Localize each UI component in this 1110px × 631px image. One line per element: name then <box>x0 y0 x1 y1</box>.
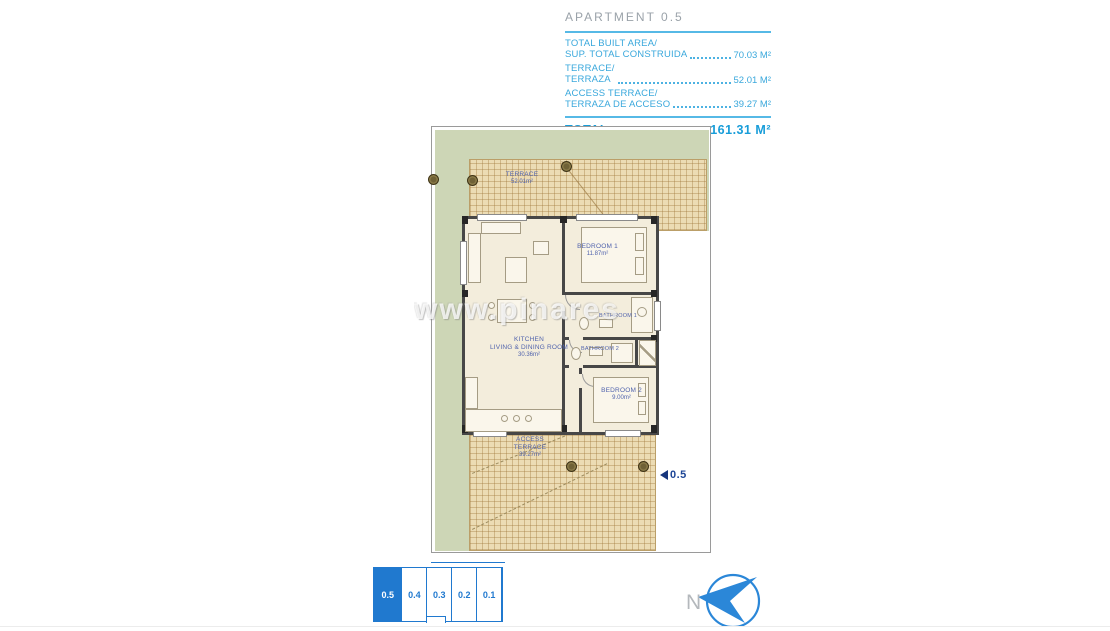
pillar <box>560 216 567 223</box>
armchair <box>533 241 549 255</box>
keyplan-unit-0-1: 0.1 <box>477 568 502 621</box>
window <box>576 214 638 221</box>
area-row-value: 39.27 M² <box>734 99 772 110</box>
access-terrace-paving <box>469 431 656 551</box>
area-row-label: ACCESS TERRACE/ TERRAZA DE ACCESO <box>565 88 670 111</box>
room-label-kitchen-living: KITCHEN LIVING & DINING ROOM 30.36m² <box>479 336 579 360</box>
wall <box>635 337 638 368</box>
pillow <box>635 233 644 251</box>
divider-total <box>565 116 771 118</box>
dot-leader <box>690 57 730 59</box>
window <box>605 430 641 437</box>
north-compass: N <box>683 570 775 626</box>
floorplan-page: APARTMENT 0.5 TOTAL BUILT AREA/ SUP. TOT… <box>0 0 1110 626</box>
keyplan-entry-notch <box>426 616 446 623</box>
room-label-bedroom1: BEDROOM 1 11.87m² <box>560 243 635 259</box>
dot-leader <box>673 106 730 108</box>
area-row-terrace: TERRACE/ TERRAZA 52.01 M² <box>565 63 771 86</box>
area-row-built: TOTAL BUILT AREA/ SUP. TOTAL CONSTRUIDA … <box>565 38 771 61</box>
unit-entrance-marker: 0.5 <box>660 469 687 481</box>
coffee-table <box>505 257 527 283</box>
window <box>460 241 467 285</box>
hob-burner <box>513 415 520 422</box>
tree-icon <box>561 161 572 172</box>
sofa <box>468 233 481 283</box>
pillow <box>635 257 644 275</box>
wardrobe <box>639 340 656 366</box>
tree-icon <box>638 461 649 472</box>
pillar <box>462 216 468 224</box>
north-letter: N <box>686 591 701 614</box>
area-row-label: TERRACE/ TERRAZA <box>565 63 615 86</box>
keyplan-unit-0-2: 0.2 <box>452 568 477 621</box>
apartment-title: APARTMENT 0.5 <box>565 10 771 24</box>
pillar <box>651 216 657 224</box>
keyplan-roof-line <box>431 562 505 563</box>
tree-icon <box>467 175 478 186</box>
area-row-value: 52.01 M² <box>734 75 772 86</box>
keyplan: 0.5 0.4 0.3 0.2 0.1 <box>373 561 505 625</box>
hob-burner <box>501 415 508 422</box>
sofa <box>481 222 521 234</box>
compass-icon: N <box>683 570 775 626</box>
area-summary: APARTMENT 0.5 TOTAL BUILT AREA/ SUP. TOT… <box>565 10 771 137</box>
room-label-bathroom2: BATHROOM 2 <box>570 346 630 353</box>
pillar <box>651 425 657 433</box>
keyplan-unit-0-4: 0.4 <box>402 568 427 621</box>
area-row-access-terrace: ACCESS TERRACE/ TERRAZA DE ACCESO 39.27 … <box>565 88 771 111</box>
dot-leader <box>618 82 731 84</box>
floorplan-plot: TERRACE 52.01m² BEDROOM 1 11.87m² KITCHE… <box>431 126 711 553</box>
window <box>477 214 527 221</box>
left-arrow-icon <box>660 470 668 480</box>
room-label-terrace: TERRACE 52.01m² <box>487 171 557 187</box>
keyplan-block-outline: 0.5 0.4 0.3 0.2 0.1 <box>373 567 503 622</box>
area-row-value: 70.03 M² <box>734 50 772 61</box>
fridge <box>465 377 478 409</box>
tree-icon <box>566 461 577 472</box>
sink <box>525 415 532 422</box>
watermark: www.pinares <box>414 293 724 327</box>
total-value: 161.31 M² <box>710 123 771 137</box>
door-opening <box>569 365 583 368</box>
divider-top <box>565 31 771 33</box>
pillow <box>638 401 646 415</box>
room-label-bedroom2: BEDROOM 2 9.00m² <box>584 387 659 403</box>
area-row-label: TOTAL BUILT AREA/ SUP. TOTAL CONSTRUIDA <box>565 38 687 61</box>
room-label-access-terrace: ACCESS TERRACE 39.27m² <box>500 436 560 460</box>
keyplan-unit-0-5: 0.5 <box>374 568 402 621</box>
keyplan-unit-0-3: 0.3 <box>427 568 452 621</box>
tree-icon <box>428 174 439 185</box>
